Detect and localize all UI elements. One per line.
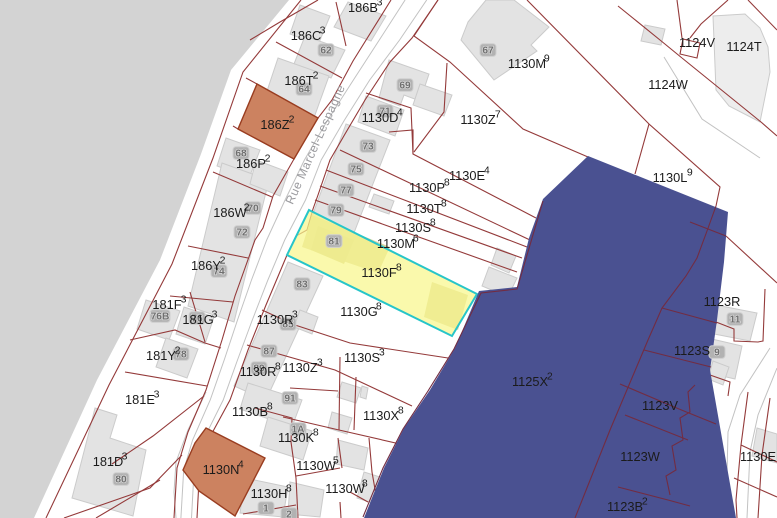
svg-text:1130B: 1130B — [232, 404, 268, 419]
svg-text:6: 6 — [413, 233, 419, 245]
svg-text:8: 8 — [376, 301, 382, 313]
svg-text:1130P: 1130P — [409, 180, 445, 195]
svg-text:3: 3 — [379, 347, 385, 359]
svg-text:1130N: 1130N — [203, 462, 240, 477]
svg-text:2: 2 — [175, 345, 181, 357]
svg-text:181G: 181G — [182, 312, 213, 327]
svg-text:67: 67 — [482, 46, 494, 57]
svg-text:4: 4 — [484, 165, 490, 177]
svg-text:3: 3 — [317, 357, 323, 369]
svg-text:9: 9 — [544, 53, 550, 65]
svg-text:79: 79 — [330, 206, 342, 217]
svg-text:8: 8 — [441, 198, 447, 210]
svg-text:1124T: 1124T — [726, 39, 762, 54]
svg-text:8: 8 — [362, 478, 368, 490]
svg-text:77: 77 — [340, 186, 352, 197]
svg-text:2: 2 — [547, 371, 553, 383]
svg-text:186Y: 186Y — [191, 258, 221, 273]
svg-text:8: 8 — [267, 401, 273, 413]
svg-text:2: 2 — [313, 70, 319, 82]
svg-text:2: 2 — [265, 153, 271, 165]
svg-text:80: 80 — [115, 475, 127, 486]
svg-text:2: 2 — [244, 202, 250, 214]
svg-text:181F: 181F — [152, 297, 181, 312]
svg-text:1123R: 1123R — [704, 294, 741, 309]
svg-text:1130M: 1130M — [377, 236, 415, 251]
svg-text:4: 4 — [397, 107, 403, 119]
svg-text:5: 5 — [333, 455, 339, 467]
svg-text:186P: 186P — [236, 156, 266, 171]
svg-text:1130S: 1130S — [344, 350, 380, 365]
svg-text:186T: 186T — [284, 73, 313, 88]
svg-text:72: 72 — [236, 228, 248, 239]
svg-text:3: 3 — [292, 309, 298, 321]
svg-text:3: 3 — [154, 389, 160, 401]
svg-text:1130F: 1130F — [361, 265, 397, 280]
svg-text:8: 8 — [430, 217, 436, 229]
svg-text:2: 2 — [642, 496, 648, 508]
svg-text:1130L: 1130L — [653, 170, 688, 185]
svg-text:2: 2 — [220, 255, 226, 267]
svg-text:8: 8 — [398, 405, 404, 417]
svg-text:1130Z: 1130Z — [282, 360, 318, 375]
svg-text:186C: 186C — [291, 28, 322, 43]
svg-text:1123S: 1123S — [674, 343, 710, 358]
svg-text:1130D: 1130D — [362, 110, 399, 125]
svg-text:9: 9 — [687, 167, 693, 179]
svg-text:1130M: 1130M — [508, 56, 546, 71]
svg-text:1123V: 1123V — [642, 398, 679, 413]
svg-text:2: 2 — [289, 114, 295, 126]
svg-text:3: 3 — [122, 451, 128, 463]
svg-text:8: 8 — [286, 483, 292, 495]
svg-text:8: 8 — [444, 177, 450, 189]
svg-text:181Y: 181Y — [146, 348, 176, 363]
svg-text:3: 3 — [320, 25, 326, 37]
svg-text:1130E: 1130E — [740, 449, 776, 464]
svg-text:1124W: 1124W — [648, 77, 689, 92]
svg-text:8: 8 — [396, 262, 402, 274]
svg-text:1130W: 1130W — [296, 458, 337, 473]
svg-text:3: 3 — [181, 294, 187, 306]
svg-text:1130Z: 1130Z — [460, 112, 496, 127]
svg-text:81: 81 — [328, 237, 340, 248]
svg-text:3: 3 — [212, 309, 218, 321]
svg-text:186B: 186B — [348, 0, 378, 15]
svg-text:2: 2 — [286, 510, 292, 518]
svg-text:1130H: 1130H — [251, 486, 288, 501]
svg-text:186W: 186W — [213, 205, 247, 220]
svg-text:1124V: 1124V — [679, 35, 716, 50]
svg-text:75: 75 — [350, 165, 362, 176]
svg-text:62: 62 — [320, 46, 332, 57]
svg-text:11: 11 — [730, 315, 741, 326]
svg-text:76B: 76B — [151, 312, 170, 323]
svg-text:1130R: 1130R — [257, 312, 294, 327]
svg-text:1130G: 1130G — [340, 304, 377, 319]
svg-text:3: 3 — [377, 0, 383, 9]
svg-text:1130W: 1130W — [325, 481, 366, 496]
svg-text:1130X: 1130X — [363, 408, 400, 423]
svg-text:91: 91 — [284, 394, 296, 405]
svg-text:73: 73 — [362, 142, 374, 153]
svg-text:87: 87 — [263, 347, 275, 358]
svg-text:1130E: 1130E — [449, 168, 485, 183]
svg-text:69: 69 — [399, 81, 411, 92]
svg-text:4: 4 — [238, 459, 244, 471]
svg-text:9: 9 — [714, 348, 720, 359]
svg-text:1123B: 1123B — [607, 499, 643, 514]
svg-text:186Z: 186Z — [260, 117, 289, 132]
svg-text:1: 1 — [263, 504, 269, 515]
svg-text:1123W: 1123W — [620, 449, 661, 464]
svg-text:7: 7 — [495, 109, 501, 121]
svg-text:1125X: 1125X — [512, 374, 549, 389]
svg-text:181E: 181E — [125, 392, 155, 407]
svg-text:1130T: 1130T — [406, 201, 442, 216]
svg-text:1130K: 1130K — [278, 430, 315, 445]
svg-text:181D: 181D — [93, 454, 124, 469]
svg-text:1130R: 1130R — [240, 364, 277, 379]
svg-text:8: 8 — [313, 427, 319, 439]
svg-text:83: 83 — [296, 280, 308, 291]
svg-text:8: 8 — [275, 361, 281, 373]
